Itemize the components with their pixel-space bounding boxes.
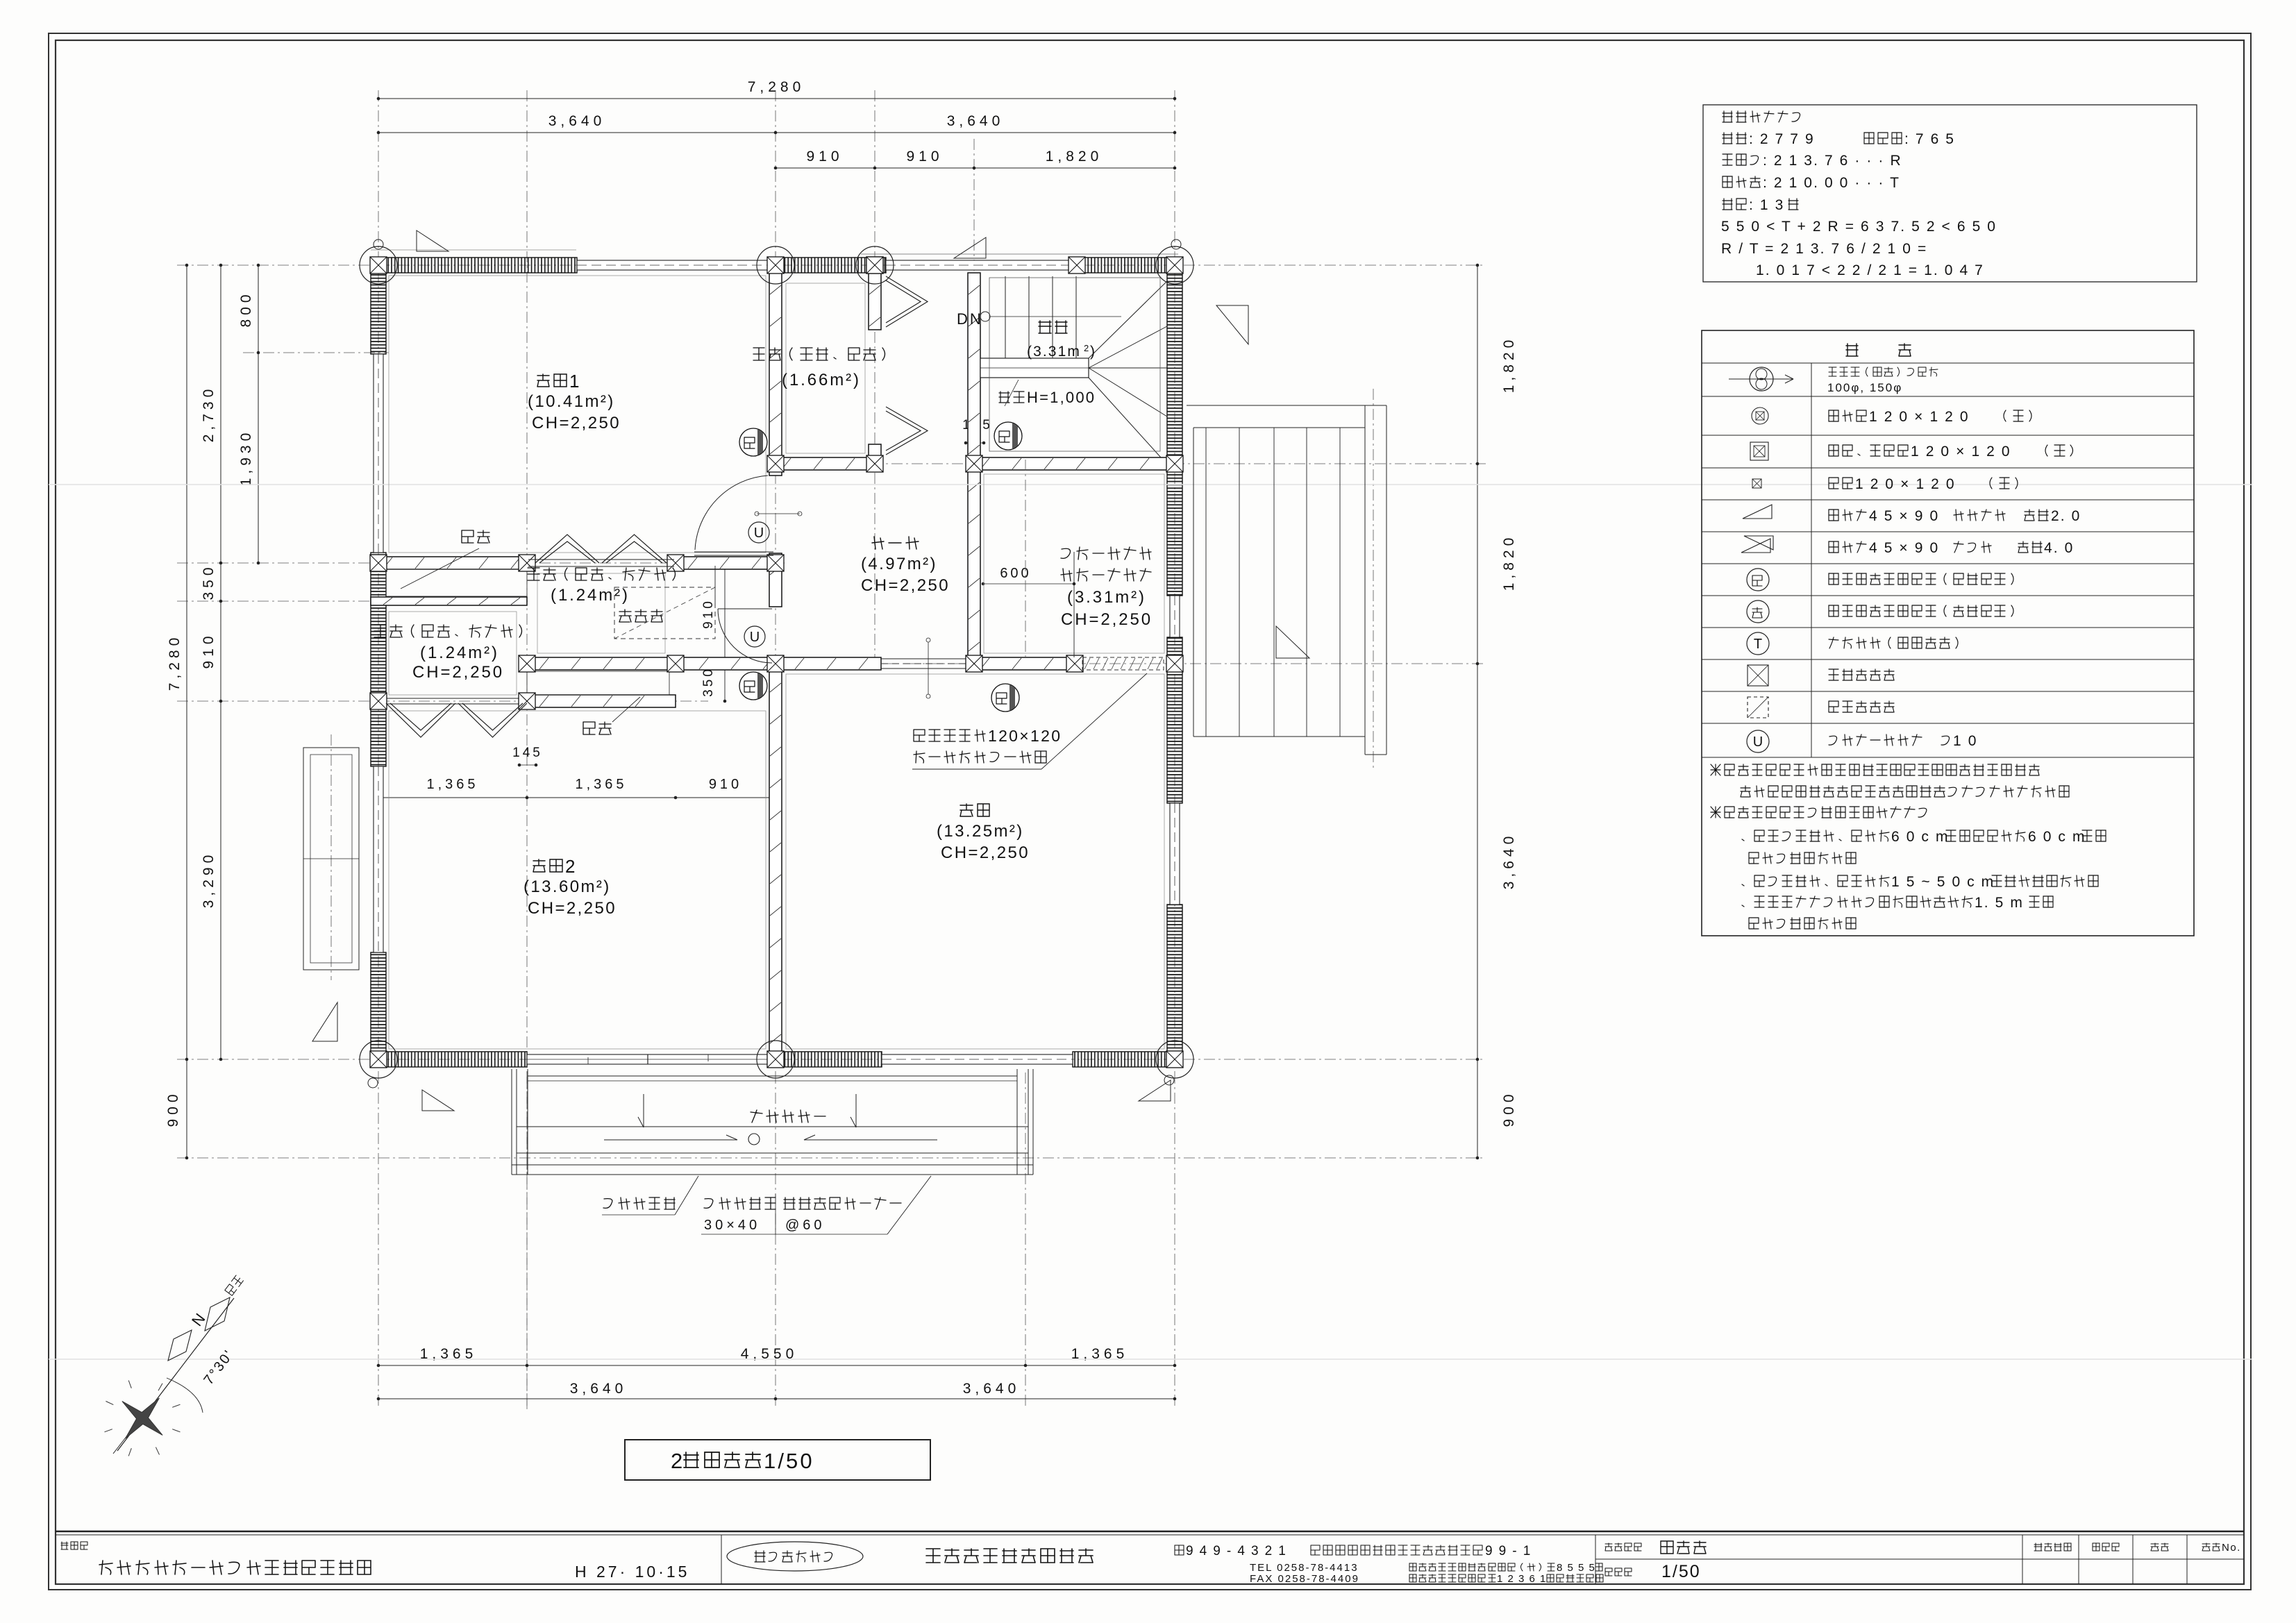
- svg-text:2: 2: [1084, 343, 1090, 353]
- svg-text:1,365: 1,365: [575, 777, 627, 792]
- svg-text:120×120: 120×120: [988, 727, 1062, 745]
- svg-text:CH=2,250: CH=2,250: [528, 899, 617, 918]
- svg-text:600: 600: [1000, 566, 1031, 581]
- svg-text:U: U: [750, 630, 760, 645]
- svg-text:8 5 5 5: 8 5 5 5: [1557, 1562, 1595, 1574]
- svg-text:: 7 6 5: : 7 6 5: [1904, 131, 1955, 147]
- svg-text:30×40: 30×40: [704, 1218, 760, 1233]
- svg-text:FAX 0258-78-4409: FAX 0258-78-4409: [1250, 1573, 1359, 1585]
- svg-text:3,640: 3,640: [1501, 832, 1517, 890]
- svg-text:1 2 3 6 1: 1 2 3 6 1: [1497, 1573, 1547, 1585]
- svg-text:1 2 0 × 1 2 0: 1 2 0 × 1 2 0: [1855, 476, 1956, 492]
- svg-text:(1.66m²): (1.66m²): [782, 371, 861, 389]
- svg-text:900: 900: [165, 1090, 181, 1127]
- svg-text:1,820: 1,820: [1501, 336, 1517, 394]
- svg-text:350: 350: [701, 666, 716, 697]
- svg-text:1. 0 1 7 < 2 2 / 2 1 = 1: 1. 0 1 7 < 2 2 / 2 1 = 1. 0 4 7: [1756, 262, 1984, 278]
- svg-text:(3.31m²): (3.31m²): [1067, 588, 1146, 607]
- svg-text:: 2 1 0. 0 0 · · · T: : 2 1 0. 0 0 · · · T: [1763, 175, 1900, 191]
- svg-text:(1.24m²): (1.24m²): [551, 586, 630, 605]
- svg-text:910: 910: [806, 149, 843, 165]
- svg-text:1,820: 1,820: [1501, 534, 1517, 591]
- svg-text:(13.60m²): (13.60m²): [523, 877, 611, 896]
- svg-text:2: 2: [565, 856, 577, 877]
- svg-text:): ): [1090, 344, 1097, 360]
- svg-text:DN: DN: [957, 310, 983, 328]
- svg-text:TEL 0258-78-4413: TEL 0258-78-4413: [1250, 1562, 1359, 1574]
- svg-text:H 27· 10·15: H 27· 10·15: [575, 1563, 689, 1581]
- svg-text:1/50: 1/50: [764, 1449, 814, 1473]
- svg-text:3,640: 3,640: [570, 1381, 628, 1397]
- svg-text:CH=2,250: CH=2,250: [1061, 610, 1153, 629]
- svg-text:2. 0: 2. 0: [2051, 508, 2081, 524]
- svg-text:3,640: 3,640: [548, 113, 606, 129]
- svg-text:2: 2: [671, 1449, 685, 1473]
- svg-text:7,280: 7,280: [167, 634, 183, 691]
- svg-text:R / T = 2 1 3. 7 6 / 2 1: R / T = 2 1 3. 7 6 / 2 1 0 =: [1721, 241, 1927, 257]
- svg-text:6 0 c m: 6 0 c m: [2028, 829, 2086, 845]
- svg-text:CH=2,250: CH=2,250: [941, 843, 1030, 862]
- svg-text:5 5 0 < T + 2 R = 6 3 7. 5: 5 5 0 < T + 2 R = 6 3 7. 5 2 < 6 5 0: [1721, 219, 1997, 235]
- svg-text:No.: No.: [2222, 1542, 2241, 1554]
- svg-text:100φ, 150φ: 100φ, 150φ: [1827, 381, 1902, 394]
- svg-text:910: 910: [201, 632, 217, 668]
- svg-text:CH=2,250: CH=2,250: [861, 576, 950, 595]
- svg-text:350: 350: [201, 563, 217, 600]
- svg-text:3,640: 3,640: [963, 1381, 1021, 1397]
- svg-text:U: U: [754, 525, 764, 541]
- svg-text:1,365: 1,365: [426, 777, 478, 792]
- svg-text:9 9 - 1: 9 9 - 1: [1485, 1544, 1532, 1558]
- svg-text:1,930: 1,930: [238, 429, 254, 487]
- svg-text:: 1 3: : 1 3: [1749, 197, 1784, 213]
- svg-text:(10.41m²): (10.41m²): [528, 392, 615, 411]
- svg-text:1 2 0 × 1 2 0: 1 2 0 × 1 2 0: [1911, 444, 2011, 460]
- svg-text:9 4 9 - 4 3 2 1: 9 4 9 - 4 3 2 1: [1186, 1544, 1287, 1558]
- svg-text:910: 910: [709, 777, 742, 792]
- svg-text:910: 910: [906, 149, 943, 165]
- svg-text:3,640: 3,640: [947, 113, 1005, 129]
- svg-text:800: 800: [238, 290, 254, 327]
- svg-text:(3.31m: (3.31m: [1027, 344, 1081, 360]
- svg-text:1/50: 1/50: [1661, 1562, 1701, 1581]
- svg-text:900: 900: [1501, 1090, 1517, 1127]
- svg-text:1: 1: [569, 371, 581, 392]
- svg-text:@60: @60: [785, 1218, 826, 1233]
- svg-text:1,820: 1,820: [1046, 149, 1103, 165]
- svg-text:7,280: 7,280: [748, 79, 805, 95]
- svg-text:4 5 × 9 0: 4 5 × 9 0: [1869, 508, 1939, 524]
- svg-text:U: U: [1753, 734, 1763, 750]
- svg-text:(13.25m²): (13.25m²): [937, 822, 1024, 841]
- svg-text:(1.24m²): (1.24m²): [420, 644, 499, 662]
- svg-text:910: 910: [701, 598, 716, 629]
- svg-text:1 0: 1 0: [1953, 733, 1978, 749]
- svg-text:1 5 ~ 5 0 c m: 1 5 ~ 5 0 c m: [1891, 874, 1995, 890]
- svg-text:: 2 7 7 9: : 2 7 7 9: [1749, 131, 1815, 147]
- svg-text:2,730: 2,730: [201, 385, 217, 443]
- svg-text:3,290: 3,290: [201, 851, 217, 909]
- svg-text:4. 0: 4. 0: [2044, 540, 2074, 556]
- svg-text:1. 5 m: 1. 5 m: [1975, 895, 2024, 911]
- svg-text:4 5 × 9 0: 4 5 × 9 0: [1869, 540, 1939, 556]
- svg-text:6 0 c m: 6 0 c m: [1891, 829, 1950, 845]
- svg-text:145: 145: [512, 746, 543, 760]
- svg-text:CH=2,250: CH=2,250: [532, 414, 621, 432]
- svg-text:(4.97m²): (4.97m²): [861, 555, 937, 573]
- svg-text:T: T: [1754, 637, 1762, 652]
- svg-text:: 2 1 3. 7 6 · · · R: : 2 1 3. 7 6 · · · R: [1763, 153, 1902, 169]
- svg-text:1 2 0 × 1 2 0: 1 2 0 × 1 2 0: [1869, 409, 1970, 425]
- svg-text:CH=2,250: CH=2,250: [412, 663, 504, 682]
- svg-text:H=1,000: H=1,000: [1027, 389, 1096, 406]
